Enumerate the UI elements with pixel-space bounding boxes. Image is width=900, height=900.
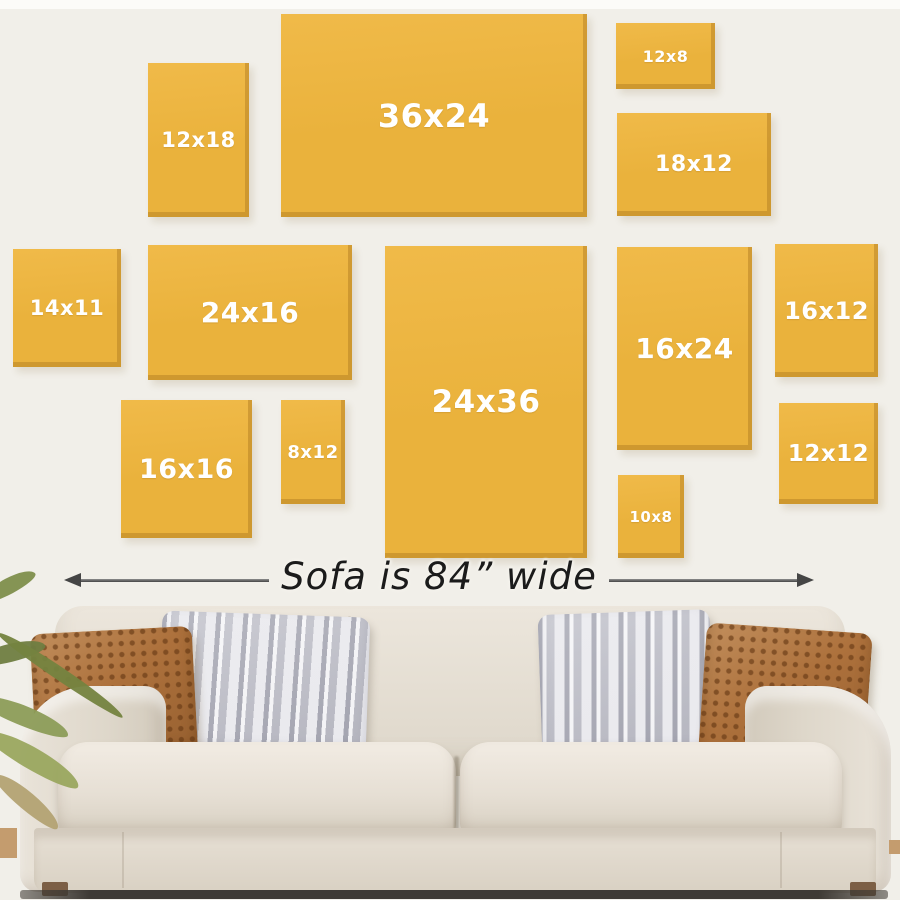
sofa-seat-cushion-right bbox=[460, 742, 842, 838]
seat-cushion-crease bbox=[454, 756, 459, 834]
floor-strip-right bbox=[889, 840, 900, 854]
plant-leaf-icon bbox=[0, 565, 38, 606]
sofa-floor-shadow bbox=[20, 890, 888, 899]
sofa-seat-cushion-left bbox=[58, 742, 456, 838]
pillow-striped-right bbox=[538, 609, 715, 761]
sofa-illustration bbox=[0, 0, 900, 900]
sofa-base-seam bbox=[780, 832, 782, 888]
floor-strip-left bbox=[0, 828, 17, 858]
sofa-base bbox=[34, 828, 876, 893]
size-guide-image: 12x1836x2412x818x1214x1124x1624x3616x241… bbox=[0, 0, 900, 900]
sofa-base-seam bbox=[122, 832, 124, 888]
